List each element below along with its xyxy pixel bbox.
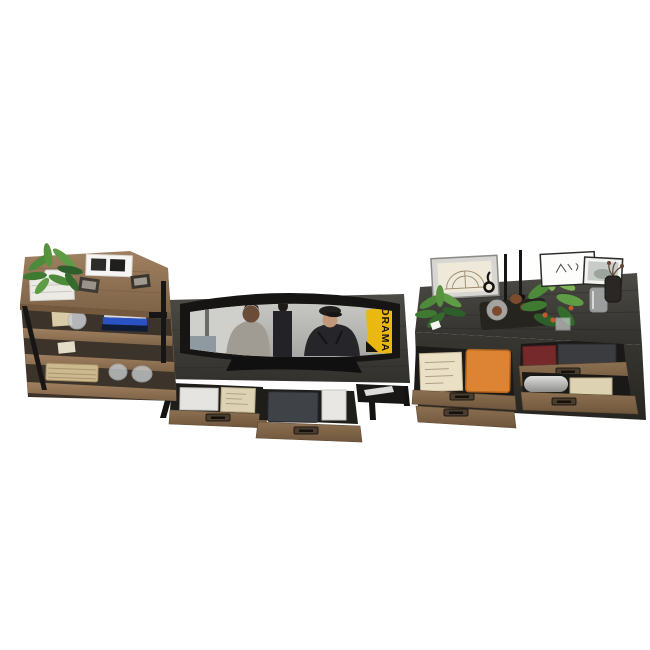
right-drawer-papers <box>322 390 346 420</box>
pinecone <box>510 294 522 304</box>
plant-glass-vase <box>556 318 570 330</box>
black-photo-frame <box>130 274 150 289</box>
orange-berry <box>542 312 547 317</box>
sb-red-book <box>523 345 557 367</box>
tv-stand-left-drawer <box>169 383 267 428</box>
left-drawer-folder <box>221 387 256 412</box>
sideboard-left-drawer <box>412 346 516 410</box>
drawer-handle <box>450 393 474 400</box>
tv-banner: DRAMA <box>366 306 393 354</box>
right-actor-cap-brim <box>326 312 342 317</box>
glass-cup <box>590 288 607 312</box>
drawer-handle <box>206 414 230 421</box>
sideboard-right-bottom-drawer <box>521 372 638 414</box>
glass-jar <box>109 364 127 380</box>
orange-berry <box>550 317 555 322</box>
left-actor-head <box>243 306 260 323</box>
orange-berry <box>569 306 574 311</box>
tv-stand-side-shelf <box>356 384 406 404</box>
black-candle <box>504 254 507 302</box>
drawer-handle <box>444 409 468 416</box>
tv-stand-right-drawer <box>256 389 362 442</box>
black-candle <box>519 250 522 296</box>
sb-silver-roll <box>524 376 568 392</box>
black-photo-frame <box>78 277 100 294</box>
scene-figure-body <box>273 311 292 361</box>
left-drawer-paper-stack <box>180 388 218 411</box>
tv-stand: DRAMA <box>160 293 410 442</box>
sb-rb-drawer-front <box>521 392 638 414</box>
furniture-render-scene: DRAMA <box>0 0 650 650</box>
bookshelf-rail <box>149 312 167 318</box>
drawer-handle <box>294 427 318 434</box>
glass-jar <box>132 366 152 382</box>
bookshelf <box>20 243 177 401</box>
shelf-paper <box>58 341 76 354</box>
tv-banner-text: DRAMA <box>379 308 391 352</box>
sb-orange-box <box>466 350 511 393</box>
furniture-render: DRAMA <box>0 0 650 650</box>
right-drawer-laptop <box>268 392 319 423</box>
white-double-frame <box>86 254 133 277</box>
sb-envelope <box>419 352 462 391</box>
sb-cream-box <box>570 378 612 395</box>
bookshelf-post-right <box>161 281 166 363</box>
drawer-handle <box>552 398 576 405</box>
pinecone <box>492 306 502 316</box>
seagrass-basket <box>46 363 99 382</box>
sideboard <box>412 250 646 428</box>
